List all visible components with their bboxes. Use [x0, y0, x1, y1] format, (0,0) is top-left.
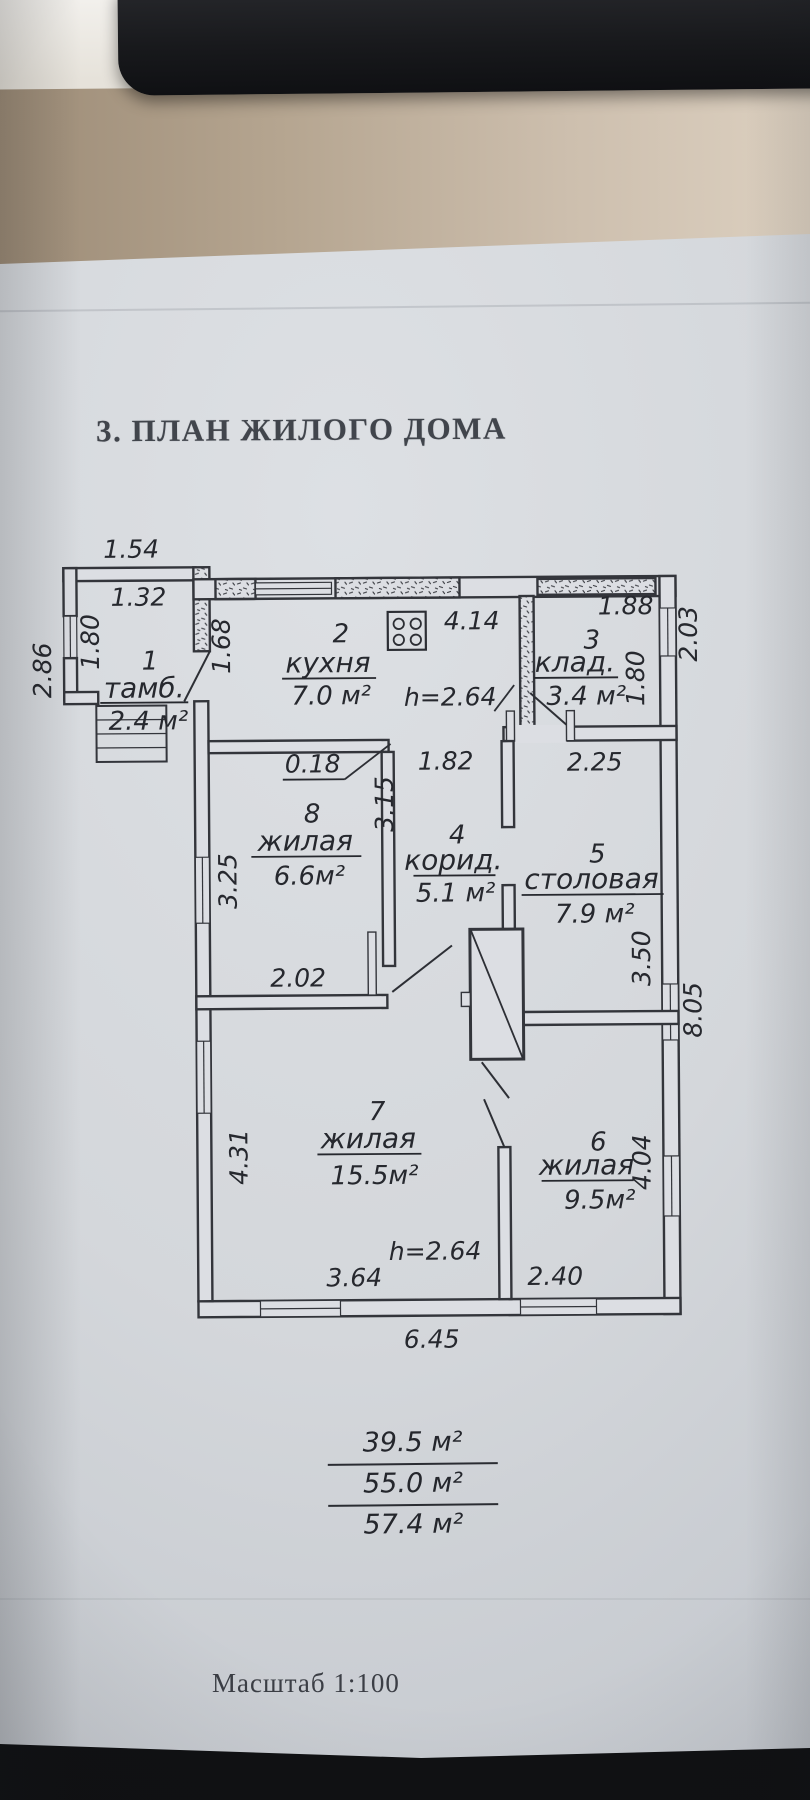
dim-dining-top: 2.25	[567, 747, 623, 776]
room6-name: жилая	[538, 1148, 635, 1182]
dim-room6-bottom: 2.40	[527, 1262, 583, 1291]
dark-object-top	[117, 0, 810, 96]
room5-name: столовая	[524, 862, 659, 896]
dim-height-upper: h=2.64	[404, 682, 497, 712]
room2-number: 2	[332, 619, 349, 649]
dim-outer-top-right: 2.03	[674, 606, 703, 662]
dim-room7-left: 4.31	[224, 1129, 253, 1185]
room2-name: кухня	[285, 646, 370, 680]
room3-name: клад.	[535, 645, 615, 679]
floor-plan-drawing: 1.54 1.32 1.80 2.86 1.68 4.14 1.88 1.80 …	[27, 498, 733, 1403]
page-title: 3. ПЛАН ЖИЛОГО ДОМА	[96, 411, 507, 450]
dim-annex-top-outer: 1.54	[103, 535, 159, 564]
room8-area: 6.6м²	[274, 861, 346, 891]
furnace-icon	[461, 929, 524, 1098]
dim-height-lower: h=2.64	[389, 1236, 482, 1266]
room6-area: 9.5м²	[564, 1185, 636, 1215]
room5-area: 7.9 м²	[555, 899, 635, 930]
room3-area: 3.4 м²	[546, 681, 626, 712]
dim-pantry-top: 1.88	[598, 591, 654, 620]
room4-name: корид.	[404, 843, 503, 877]
room1-name: тамб.	[104, 671, 185, 705]
room7-name: жилая	[320, 1122, 417, 1156]
heated-area-total: 55.0 м²	[328, 1464, 498, 1507]
room1-area: 2.4 м²	[108, 706, 188, 737]
dim-annex-left: 1.80	[76, 614, 105, 670]
overall-area-total: 57.4 м²	[328, 1505, 498, 1546]
dim-dining-right: 3.50	[627, 930, 656, 986]
dim-room7-top: 2.02	[270, 963, 326, 992]
dim-bottom-outer: 6.45	[404, 1324, 460, 1353]
room2-area: 7.0 м²	[291, 681, 371, 712]
photo-of-floor-plan: 3. ПЛАН ЖИЛОГО ДОМА	[0, 0, 810, 1800]
dim-corridor-top: 1.82	[418, 746, 474, 775]
dim-kitchen-top: 4.14	[444, 606, 500, 635]
scale-label: Масштаб 1:100	[212, 1668, 400, 1699]
dim-room7-bottom: 3.64	[326, 1263, 382, 1292]
area-summary: 39.5 м² 55.0 м² 57.4 м²	[327, 1423, 498, 1546]
room4-area: 5.1 м²	[416, 878, 496, 909]
dim-room8-right: 3.15	[370, 776, 399, 832]
dim-outer-left: 2.86	[28, 642, 57, 698]
paper-crease	[0, 1598, 810, 1600]
dim-wall-thickness: 0.18	[285, 749, 341, 778]
stove-icon	[388, 612, 426, 650]
dim-kitchen-left: 1.68	[207, 618, 236, 674]
dim-room8-left: 3.25	[213, 853, 242, 909]
dim-outer-right: 8.05	[678, 982, 707, 1038]
living-area-total: 39.5 м²	[327, 1423, 497, 1466]
room8-name: жилая	[256, 824, 353, 858]
dim-annex-top-inner: 1.32	[111, 582, 167, 611]
room7-area: 15.5м²	[331, 1161, 419, 1192]
